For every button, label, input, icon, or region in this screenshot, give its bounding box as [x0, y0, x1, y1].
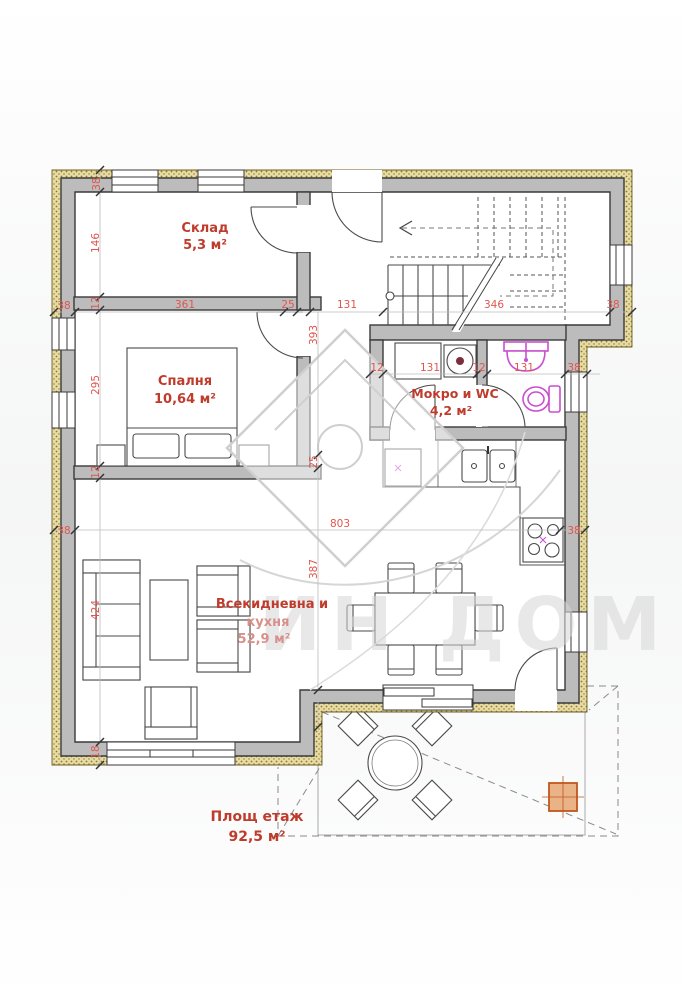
label-living: Всекидневна и — [216, 597, 328, 612]
dim-int-wall-b: 12 — [90, 465, 102, 478]
dim-stub: 25 — [281, 299, 294, 311]
label-bedroom-area: 10,64 м² — [154, 392, 216, 407]
dim-hall-length: 393 — [308, 325, 320, 345]
sliding-door-terrace — [383, 685, 473, 710]
label-wetroom: Мокро и WC — [411, 386, 498, 401]
dim-top-wall: 38 — [91, 177, 103, 190]
window-storage-1 — [112, 170, 158, 192]
stove — [523, 518, 563, 562]
dim-storage-width: 361 — [175, 299, 195, 311]
window-stairs — [610, 245, 632, 285]
dim-bedroom-height: 295 — [90, 375, 102, 395]
window-living — [107, 742, 235, 765]
window-bedroom-2 — [52, 392, 75, 428]
label-bedroom: Спалня — [158, 374, 212, 389]
nightstand — [97, 445, 125, 466]
label-wetroom-area: 4,2 м² — [430, 403, 472, 418]
label-storage-area: 5,3 м² — [183, 238, 227, 253]
terrace-chair — [412, 780, 452, 820]
coffee-table — [150, 580, 188, 660]
floor-plan-drawing: ИН ДОМ 38 146 12 295 12 424 18 38 38 361… — [0, 0, 682, 1000]
dim-bottom-wall: 18 — [90, 745, 102, 758]
label-storage: Склад — [181, 221, 228, 236]
window-bedroom-1 — [52, 318, 75, 350]
terrace-column — [542, 776, 584, 818]
dim-right-wall: 38 — [606, 299, 619, 311]
label-living-area: 52,9 м² — [238, 632, 291, 647]
dim-storage-height: 146 — [90, 233, 102, 253]
dim-wc-b: 131 — [420, 362, 440, 374]
dim-wc-d: 131 — [514, 362, 534, 374]
dim-int-wall-a: 12 — [90, 296, 102, 309]
watermark-text: ИН ДОМ — [259, 582, 671, 668]
dim-wc-a: 12 — [370, 362, 383, 374]
floor-plan: ИН ДОМ 38 146 12 295 12 424 18 38 38 361… — [0, 0, 682, 1000]
armchair — [145, 687, 197, 739]
dim-living-height: 387 — [308, 559, 320, 579]
dim-living-width: 803 — [330, 518, 350, 530]
dim-wc-e: 38 — [567, 362, 580, 374]
toilet — [523, 386, 560, 412]
label-floor-area: 92,5 м² — [229, 829, 286, 845]
label-living-2: кухня — [246, 615, 289, 630]
dim-left-wall-b: 38 — [57, 525, 70, 537]
dim-sofa-wall: 424 — [90, 600, 102, 620]
window-storage-2 — [198, 170, 244, 192]
dim-left-wall-a: 38 — [57, 300, 70, 312]
washing-machine — [444, 345, 476, 377]
terrace-chair — [338, 780, 378, 820]
dim-wc-c: 12 — [472, 362, 485, 374]
terrace-table — [368, 736, 422, 790]
dim-stove-wall: 38 — [567, 525, 580, 537]
dim-hall-width: 131 — [337, 299, 357, 311]
dim-stairs-width: 346 — [484, 299, 504, 311]
dim-bedroom-wall: 25 — [308, 455, 320, 468]
label-floor: Площ етаж — [211, 809, 304, 825]
